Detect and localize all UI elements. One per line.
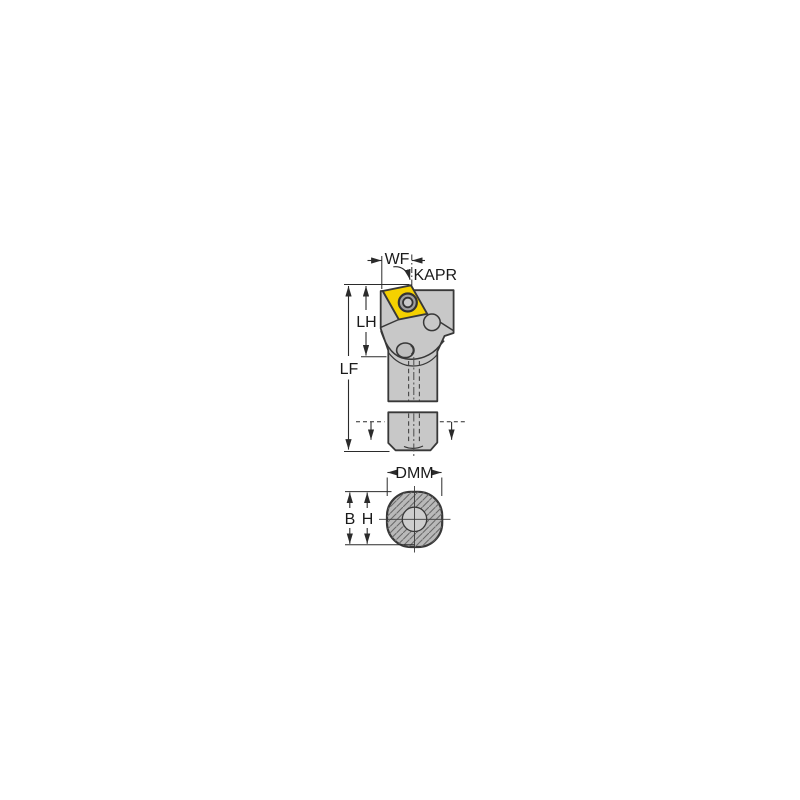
holder-body-lower: [388, 412, 437, 450]
insert-screw-center: [403, 298, 413, 308]
h-label: H: [362, 511, 374, 528]
kapr-label: KAPR: [414, 267, 458, 284]
h-dimension: H: [362, 493, 374, 544]
side-view: WF KAPR LH LF: [340, 251, 465, 456]
section-centre-lines: [379, 486, 451, 553]
pocket-notch: [424, 314, 441, 331]
tool-dimension-diagram: WF KAPR LH LF: [0, 0, 800, 800]
wf-label: WF: [385, 251, 410, 268]
clamp-screw: [397, 343, 414, 358]
kapr-callout: KAPR: [393, 267, 457, 284]
dmm-label: DMM: [395, 465, 433, 482]
lf-label: LF: [340, 361, 359, 378]
b-dimension: B: [345, 493, 356, 544]
drawing-canvas: WF KAPR LH LF: [0, 0, 800, 800]
lh-label: LH: [356, 314, 376, 331]
cross-section-view: DMM B H: [345, 465, 451, 553]
b-label: B: [345, 511, 356, 528]
